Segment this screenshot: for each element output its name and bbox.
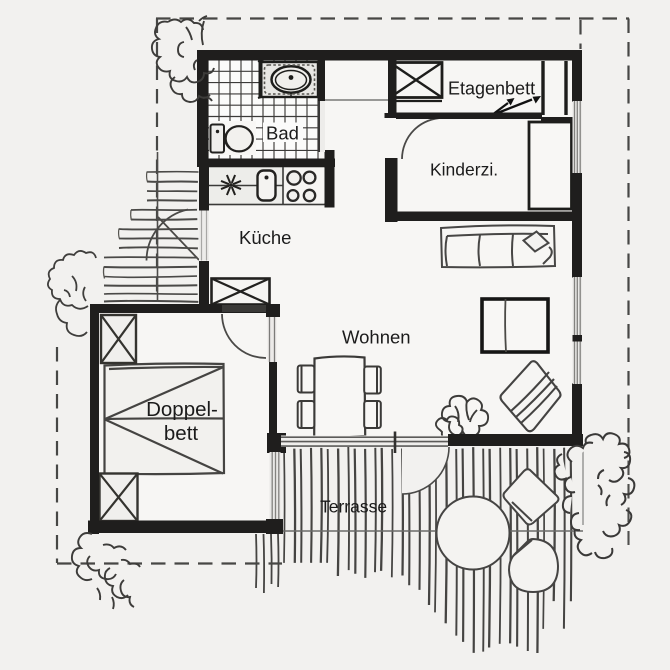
svg-text:Doppel-: Doppel- [146, 398, 218, 421]
svg-text:Terrasse: Terrasse [320, 497, 387, 517]
svg-text:Küche: Küche [239, 227, 291, 248]
svg-text:bett: bett [164, 422, 198, 445]
svg-text:Wohnen: Wohnen [342, 327, 411, 348]
svg-text:Bad: Bad [266, 123, 299, 144]
svg-text:Etagenbett: Etagenbett [448, 79, 535, 99]
svg-text:Kinderzi.: Kinderzi. [430, 160, 498, 180]
